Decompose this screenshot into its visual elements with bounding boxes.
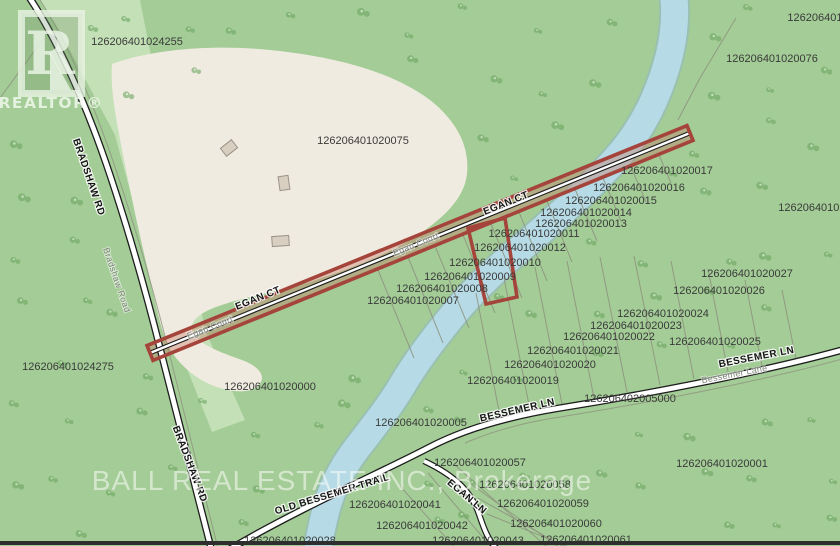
tree-highlight xyxy=(21,195,24,198)
tree-highlight xyxy=(592,81,595,84)
parcel-label: 126206401020026 xyxy=(673,285,765,297)
tree-highlight xyxy=(597,312,599,314)
building xyxy=(272,235,290,246)
tree-highlight xyxy=(704,470,706,472)
tree-crown xyxy=(596,82,602,88)
tree-crown xyxy=(197,70,202,75)
parcel-label: 126206401020027 xyxy=(701,268,793,280)
parcel-label: 126206401020011 xyxy=(489,228,580,240)
tree-crown xyxy=(126,18,130,22)
tree-highlight xyxy=(713,35,715,37)
tree-highlight xyxy=(810,145,812,147)
tree-highlight xyxy=(109,310,111,312)
tree-crown xyxy=(244,521,249,526)
tree-highlight xyxy=(79,532,81,534)
tree-crown xyxy=(592,241,597,246)
tree-highlight xyxy=(711,94,714,97)
tree-crown xyxy=(497,78,503,84)
tree-crown xyxy=(364,11,370,17)
tree-highlight xyxy=(541,92,543,94)
tree-highlight xyxy=(764,306,766,308)
tree-crown xyxy=(129,94,134,99)
parcel-label: 126206401020007 xyxy=(367,295,459,307)
tree-crown xyxy=(142,410,147,415)
parcel-label: 126206401020060 xyxy=(510,518,602,530)
tree-highlight xyxy=(13,258,15,260)
tree-crown xyxy=(16,259,21,264)
tree-crown xyxy=(14,403,19,408)
tree-highlight xyxy=(555,123,558,126)
parcel-label: 126206401020020 xyxy=(504,359,596,371)
tree-crown xyxy=(641,485,646,490)
tree-highlight xyxy=(745,5,747,7)
parcel-label: 126206401020022 xyxy=(563,331,655,343)
tree-highlight xyxy=(426,408,428,410)
realtor-logo-wordmark: REALTOR® xyxy=(0,94,104,112)
tree-highlight xyxy=(536,29,538,31)
tree-crown xyxy=(256,434,260,438)
parcel-label: 126206401020019 xyxy=(467,375,559,387)
tree-crown xyxy=(730,524,735,529)
tree-crown xyxy=(613,21,618,26)
tree-highlight xyxy=(200,399,202,401)
parcel-label: 126206401020017 xyxy=(621,165,713,177)
tree-crown xyxy=(532,313,537,318)
parcel-label: 126206401024275 xyxy=(22,361,114,373)
tree-highlight xyxy=(640,262,642,264)
tree-crown xyxy=(828,254,832,258)
brokerage-watermark: BALL REAL ESTATE INC., Brokerage xyxy=(92,465,592,496)
tree-highlight xyxy=(727,523,729,525)
tree-crown xyxy=(93,27,98,32)
parcel-label: 126206401020075 xyxy=(317,135,409,147)
parcel-label: 1262064010 xyxy=(787,12,840,24)
tree-crown xyxy=(23,300,28,305)
tree-crown xyxy=(463,6,467,10)
tree-highlight xyxy=(759,183,761,185)
tree-highlight xyxy=(768,88,770,90)
tree-highlight xyxy=(775,524,777,526)
tree-highlight xyxy=(480,136,482,138)
tree-crown xyxy=(602,472,607,477)
parcel-label: 126206401020025 xyxy=(669,336,761,348)
tree-crown xyxy=(716,36,722,42)
tree-crown xyxy=(643,263,648,268)
tree-crown xyxy=(814,146,820,152)
tree-highlight xyxy=(228,29,230,31)
tree-highlight xyxy=(317,423,319,425)
parcel-label: 126206401020042 xyxy=(376,520,468,532)
parcel-label: 126206401020005 xyxy=(375,417,467,429)
tree-crown xyxy=(767,307,772,312)
tree-crown xyxy=(543,93,547,97)
tree-crown xyxy=(763,185,769,191)
tree-highlight xyxy=(67,419,69,421)
parcel-map-screenshot: 1262064010242551262064010200761262064010… xyxy=(0,0,840,546)
tree-crown xyxy=(484,137,489,142)
tree-crown xyxy=(752,477,757,482)
tree-highlight xyxy=(610,20,612,22)
tree-highlight xyxy=(686,435,689,438)
tree-highlight xyxy=(461,371,463,373)
tree-highlight xyxy=(407,34,409,36)
tree-highlight xyxy=(638,484,640,486)
tree-highlight xyxy=(765,420,767,422)
tree-crown xyxy=(69,420,73,424)
tree-crown xyxy=(319,424,323,428)
tree-crown xyxy=(833,481,837,485)
tree-crown xyxy=(409,34,413,38)
parcel-label: 126206401020001 xyxy=(676,458,768,470)
parcel-label: 126206401024255 xyxy=(91,36,183,48)
parcel-label: 126206401020021 xyxy=(527,345,619,357)
tree-highlight xyxy=(11,402,13,404)
tree-highlight xyxy=(352,376,355,379)
tree-highlight xyxy=(72,238,74,240)
tree-crown xyxy=(777,524,781,528)
tree-crown xyxy=(812,419,816,423)
tree-highlight xyxy=(637,433,639,435)
tree-crown xyxy=(291,14,295,18)
tree-highlight xyxy=(188,28,190,30)
tree-crown xyxy=(832,517,837,522)
tree-highlight xyxy=(360,10,363,13)
tree-crown xyxy=(25,196,31,202)
tree-highlight xyxy=(809,418,811,420)
parcel-label: 126206401020041 xyxy=(349,499,441,511)
tree-crown xyxy=(345,402,351,408)
tree-crown xyxy=(600,313,605,318)
tree-crown xyxy=(827,69,832,74)
parcel-label: 126206401020016 xyxy=(593,182,685,194)
tree-crown xyxy=(53,478,58,483)
tree-highlight xyxy=(13,142,16,145)
tree-highlight xyxy=(51,477,53,479)
tree-highlight xyxy=(85,299,87,301)
tree-crown xyxy=(231,30,236,35)
tree-highlight xyxy=(749,476,751,478)
tree-highlight xyxy=(512,177,514,179)
tree-crown xyxy=(690,436,696,442)
tree-highlight xyxy=(145,375,147,377)
parcel-label: 126206401020000 xyxy=(224,381,316,393)
tree-crown xyxy=(639,434,643,438)
parcel-label: 126206401020008 xyxy=(396,283,488,295)
parcel-label: 126206401020015 xyxy=(565,195,657,207)
parcel-label: 126206401020010 xyxy=(449,257,541,269)
tree-crown xyxy=(538,30,542,34)
tree-crown xyxy=(203,400,207,404)
parcel-label: 126206401020059 xyxy=(497,498,589,510)
tree-highlight xyxy=(461,513,463,515)
tree-highlight xyxy=(460,5,462,7)
tree-highlight xyxy=(762,254,765,257)
tree-highlight xyxy=(126,93,128,95)
tree-highlight xyxy=(824,68,826,70)
tree-highlight xyxy=(692,152,694,154)
tree-crown xyxy=(82,533,87,538)
parcel-label: 126206401020076 xyxy=(726,53,818,65)
parcel-label: 1262064010200 xyxy=(778,202,840,214)
tree-highlight xyxy=(139,409,141,411)
tree-crown xyxy=(17,143,23,149)
tree-crown xyxy=(19,484,25,490)
tree-highlight xyxy=(20,299,22,301)
parcel-label: 126206402005000 xyxy=(584,393,676,405)
building xyxy=(278,175,290,190)
tree-crown xyxy=(770,89,774,93)
map-canvas[interactable]: 1262064010242551262064010200761262064010… xyxy=(0,0,840,546)
tree-crown xyxy=(656,295,662,301)
tree-crown xyxy=(662,344,667,349)
tree-crown xyxy=(413,58,418,63)
tree-crown xyxy=(558,124,564,130)
tree-highlight xyxy=(829,516,831,518)
tree-highlight xyxy=(194,69,196,71)
tree-highlight xyxy=(288,13,290,15)
tree-crown xyxy=(766,255,772,261)
tree-crown xyxy=(771,120,776,125)
tree-crown xyxy=(77,200,83,206)
tree-highlight xyxy=(831,480,833,482)
tree-crown xyxy=(714,95,720,101)
tree-highlight xyxy=(703,189,705,191)
parcel-label: 126206401020009 xyxy=(424,271,516,283)
tree-highlight xyxy=(826,253,828,255)
tree-crown xyxy=(88,300,92,304)
tree-crown xyxy=(768,421,773,426)
tree-highlight xyxy=(769,119,771,121)
parcel-label: 126206401020012 xyxy=(474,242,566,254)
tree-crown xyxy=(429,409,434,414)
tree-crown xyxy=(112,311,117,316)
tree-highlight xyxy=(528,312,530,314)
tree-highlight xyxy=(253,433,255,435)
tree-highlight xyxy=(599,471,601,473)
tree-crown xyxy=(694,153,699,158)
tree-crown xyxy=(355,378,361,384)
tree-crown xyxy=(708,471,714,477)
tree-crown xyxy=(748,6,753,11)
tree-highlight xyxy=(729,260,731,262)
tree-highlight xyxy=(15,483,17,485)
tree-highlight xyxy=(74,198,77,201)
tree-highlight xyxy=(341,401,344,404)
tree-crown xyxy=(464,514,469,519)
tree-crown xyxy=(514,177,518,181)
tree-highlight xyxy=(124,17,126,19)
tree-highlight xyxy=(90,26,92,28)
tree-crown xyxy=(75,239,80,244)
tree-highlight xyxy=(653,294,655,296)
tree-crown xyxy=(148,376,153,381)
tree-crown xyxy=(706,190,711,195)
tree-highlight xyxy=(494,77,496,79)
tree-crown xyxy=(191,29,195,33)
tree-highlight xyxy=(497,295,499,297)
tree-highlight xyxy=(241,520,243,522)
tree-crown xyxy=(732,261,737,266)
tree-highlight xyxy=(589,240,591,242)
tree-highlight xyxy=(659,343,661,345)
parcel-label: 126206401020024 xyxy=(617,308,709,320)
map-border-bottom xyxy=(0,541,840,545)
tree-highlight xyxy=(410,57,412,59)
